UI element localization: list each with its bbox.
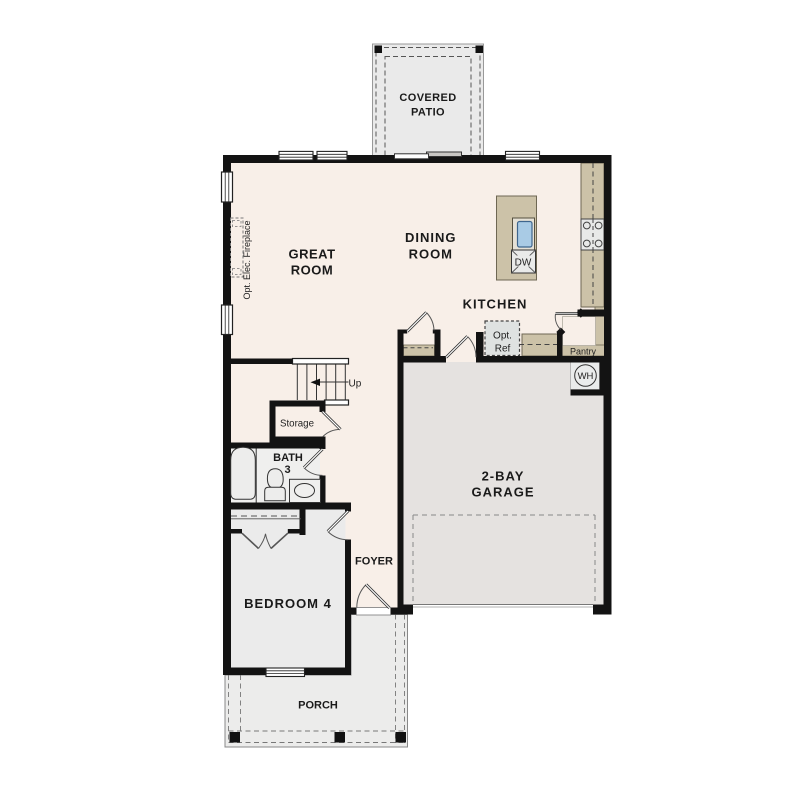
svg-text:GARAGE: GARAGE [471, 485, 534, 500]
svg-text:ROOM: ROOM [409, 246, 453, 261]
svg-text:COVERED: COVERED [399, 92, 456, 104]
svg-text:FOYER: FOYER [355, 556, 393, 568]
svg-text:3: 3 [284, 464, 290, 476]
svg-text:Up: Up [349, 378, 362, 389]
svg-text:WH: WH [578, 371, 594, 382]
svg-text:DW: DW [515, 258, 532, 269]
svg-text:Storage: Storage [280, 419, 314, 430]
svg-text:Pantry: Pantry [570, 347, 597, 357]
svg-text:2-BAY: 2-BAY [482, 469, 525, 484]
svg-text:DINING: DINING [405, 230, 457, 245]
svg-text:BEDROOM 4: BEDROOM 4 [244, 596, 332, 611]
svg-text:Opt.: Opt. [493, 331, 512, 342]
svg-text:KITCHEN: KITCHEN [463, 297, 528, 312]
svg-text:Opt. Elec. Fireplace: Opt. Elec. Fireplace [242, 220, 252, 299]
svg-text:PORCH: PORCH [298, 700, 338, 712]
svg-text:Ref: Ref [495, 344, 511, 355]
svg-text:PATIO: PATIO [411, 107, 445, 119]
svg-text:GREAT: GREAT [288, 246, 335, 261]
svg-text:BATH: BATH [273, 452, 303, 464]
svg-text:ROOM: ROOM [291, 263, 333, 278]
